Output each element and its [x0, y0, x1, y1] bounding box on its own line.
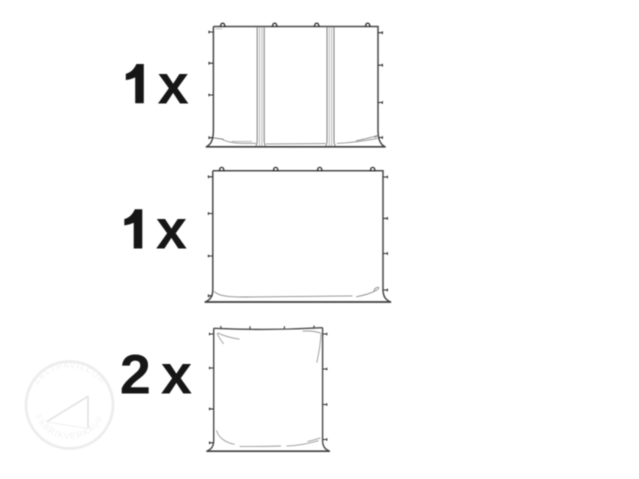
svg-text:2: 2: [120, 342, 151, 405]
svg-text:x: x: [161, 342, 192, 405]
svg-text:ZELTPAVILLON: ZELTPAVILLON: [31, 360, 108, 386]
svg-text:x: x: [158, 52, 189, 115]
svg-text:x: x: [156, 198, 187, 261]
svg-text:FABRIKVERKAUF: FABRIKVERKAUF: [33, 413, 105, 441]
